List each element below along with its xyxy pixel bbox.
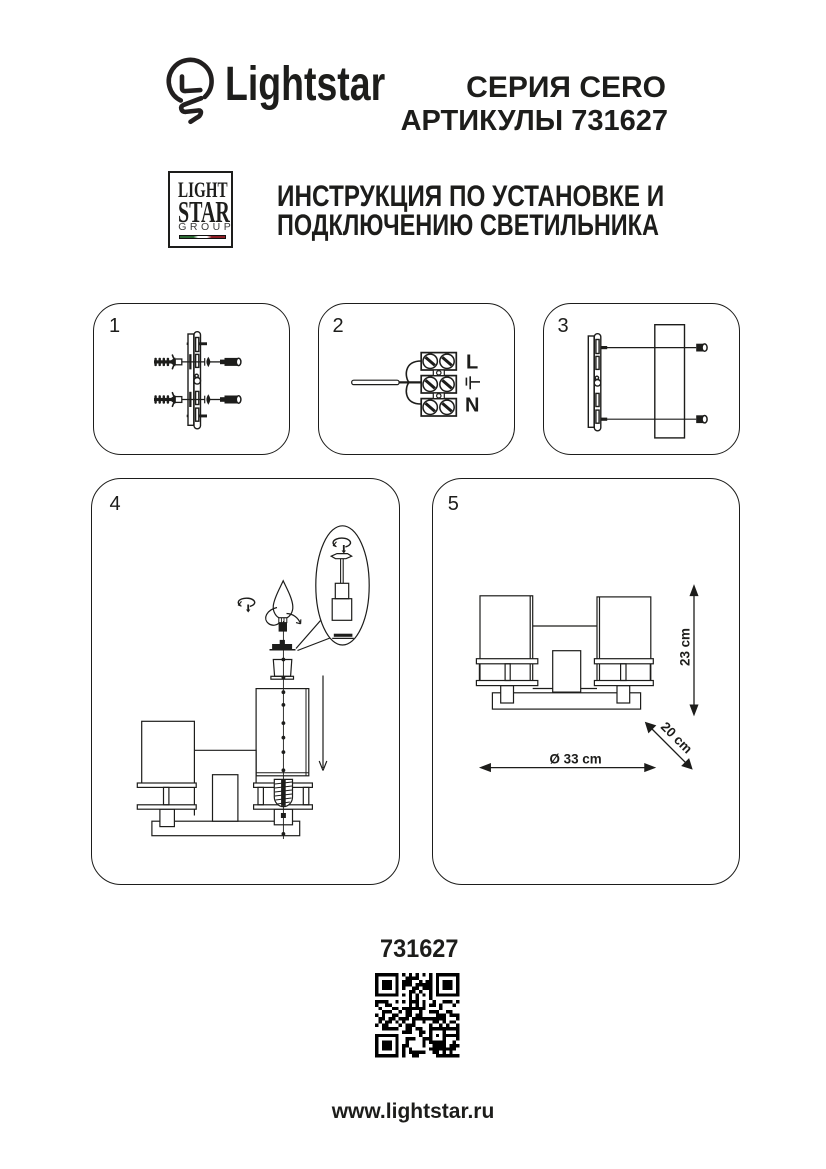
svg-text:23 cm: 23 cm xyxy=(678,628,693,666)
svg-text:N: N xyxy=(465,394,479,416)
svg-text:L: L xyxy=(466,351,478,373)
svg-text:Ø 33 cm: Ø 33 cm xyxy=(550,752,602,767)
svg-text:20 cm: 20 cm xyxy=(658,719,696,757)
